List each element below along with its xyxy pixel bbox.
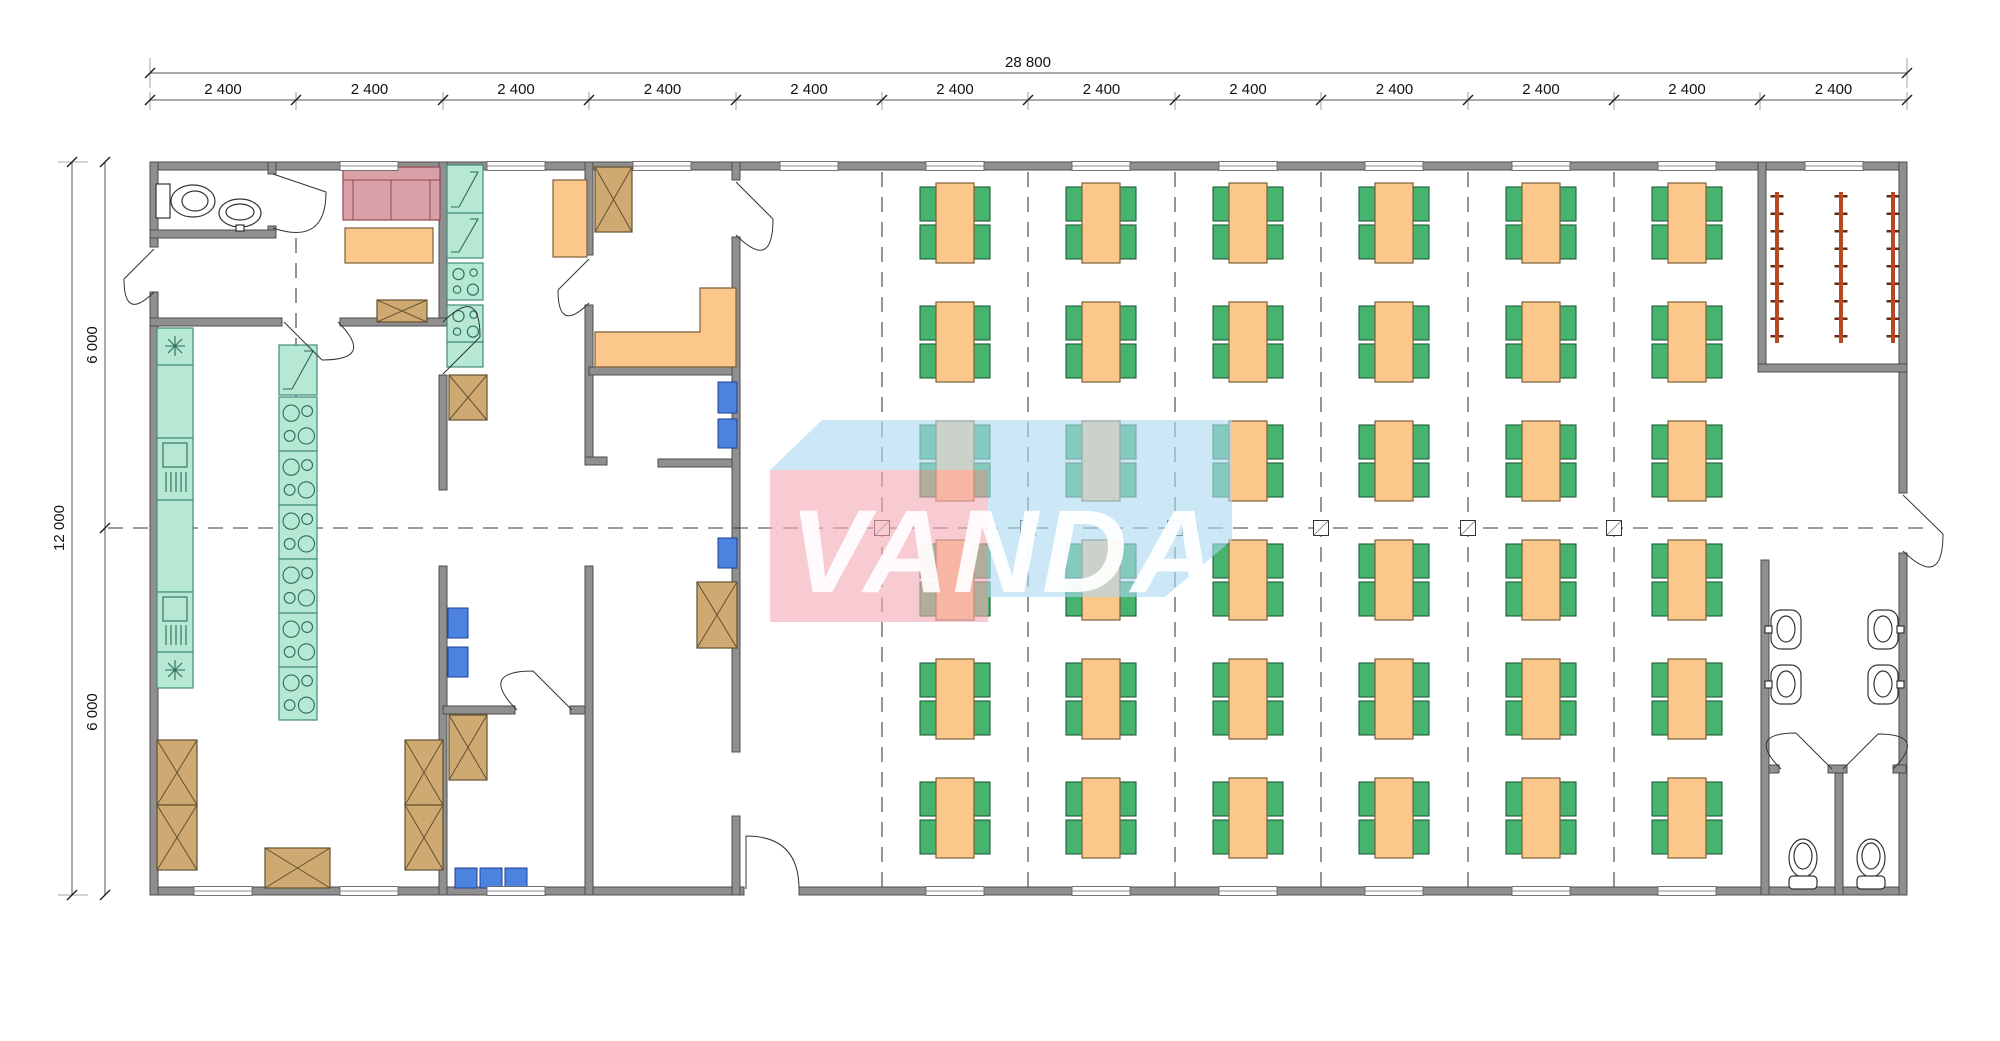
floor-plan-canvas: 28 800 2 4002 4002 4002 4002 4002 4002 4… — [0, 0, 2000, 1041]
chair — [1359, 701, 1375, 735]
chair — [1652, 225, 1668, 259]
chair — [1066, 225, 1082, 259]
floor-plan-image: 28 800 2 4002 4002 4002 4002 4002 4002 4… — [0, 0, 2000, 1041]
chair — [1560, 782, 1576, 816]
chair — [1267, 544, 1283, 578]
crossed-cabinet — [595, 167, 632, 232]
wardrobe-racks — [1777, 192, 1893, 343]
table — [936, 183, 974, 263]
table — [1668, 421, 1706, 501]
chair — [1213, 344, 1229, 378]
table — [936, 302, 974, 382]
table — [1375, 421, 1413, 501]
chair — [1120, 782, 1136, 816]
chair — [1506, 582, 1522, 616]
window — [1512, 162, 1570, 171]
table — [1082, 778, 1120, 858]
serving-counter-l — [595, 288, 736, 367]
chair — [1066, 701, 1082, 735]
crossed-cabinet — [405, 805, 443, 870]
chair — [1413, 463, 1429, 497]
chair — [1359, 544, 1375, 578]
window — [1072, 162, 1130, 171]
chair — [1413, 344, 1429, 378]
window — [926, 887, 984, 896]
dining-table-group — [1213, 659, 1283, 739]
chair — [1506, 782, 1522, 816]
crossed-cabinet — [697, 582, 737, 648]
chair — [1652, 344, 1668, 378]
chair — [1066, 187, 1082, 221]
blue-seat — [718, 538, 737, 568]
dim-top-segment-7: 2 400 — [1083, 81, 1121, 98]
stove-top — [447, 305, 483, 342]
chair — [1706, 663, 1722, 697]
chair — [1359, 782, 1375, 816]
table — [1522, 421, 1560, 501]
stove-top — [447, 263, 483, 300]
chair — [1560, 225, 1576, 259]
chair — [1652, 463, 1668, 497]
chair — [920, 782, 936, 816]
table — [1668, 540, 1706, 620]
chair — [1359, 187, 1375, 221]
dining-table-group — [1652, 540, 1722, 620]
dim-top-segment-6: 2 400 — [936, 81, 974, 98]
chair — [920, 663, 936, 697]
dimension-left-segments: 6 000 6 000 — [84, 157, 110, 900]
window — [340, 887, 398, 896]
dim-top-segment-3: 2 400 — [497, 81, 535, 98]
chair — [974, 225, 990, 259]
window — [487, 162, 545, 171]
chair — [1652, 544, 1668, 578]
chair — [974, 701, 990, 735]
chair — [1560, 187, 1576, 221]
prep-room-desk — [553, 180, 587, 257]
dining-table-group — [1506, 659, 1576, 739]
window — [1219, 162, 1277, 171]
dining-table-group — [1066, 659, 1136, 739]
dining-table-group — [1359, 183, 1429, 263]
window — [1219, 887, 1277, 896]
chair — [1359, 582, 1375, 616]
dining-table-group — [920, 778, 990, 858]
table — [1229, 302, 1267, 382]
chair — [1120, 701, 1136, 735]
dining-table-group — [1066, 778, 1136, 858]
crossed-cabinet — [449, 375, 487, 420]
kitchen-island — [279, 345, 317, 395]
chair — [1560, 701, 1576, 735]
dim-top-segment-12: 2 400 — [1815, 81, 1853, 98]
blue-seat — [448, 608, 468, 638]
chair — [974, 344, 990, 378]
blue-seat — [505, 868, 527, 888]
chair — [1120, 820, 1136, 854]
chair — [1120, 225, 1136, 259]
dining-table-group — [1066, 183, 1136, 263]
dining-table-group — [1652, 302, 1722, 382]
staff-room-sofa — [343, 167, 440, 220]
dimension-top-overall: 28 800 — [145, 54, 1912, 88]
chair — [1506, 344, 1522, 378]
crossed-cabinet — [157, 740, 197, 805]
chair — [1706, 582, 1722, 616]
chair — [1359, 663, 1375, 697]
window — [1512, 887, 1570, 896]
chair — [1267, 701, 1283, 735]
chair — [1359, 820, 1375, 854]
chair — [974, 306, 990, 340]
dining-table-group — [1213, 183, 1283, 263]
table — [1522, 778, 1560, 858]
dining-table-group — [1213, 540, 1283, 620]
chair — [1066, 782, 1082, 816]
chair — [1066, 820, 1082, 854]
chair — [1706, 701, 1722, 735]
table — [1375, 540, 1413, 620]
dining-table-group — [1359, 659, 1429, 739]
table — [936, 659, 974, 739]
chair — [1652, 425, 1668, 459]
blue-seat — [718, 419, 737, 448]
chair — [1267, 582, 1283, 616]
chair — [1213, 663, 1229, 697]
table — [1668, 302, 1706, 382]
chair — [1506, 544, 1522, 578]
chair — [1213, 701, 1229, 735]
chair — [1652, 663, 1668, 697]
chair — [1706, 463, 1722, 497]
dimension-left-overall: 12 000 — [51, 157, 88, 900]
dining-table-group — [1213, 302, 1283, 382]
dining-table-group — [1359, 302, 1429, 382]
chair — [1267, 820, 1283, 854]
staff-room-table — [345, 228, 433, 263]
chair — [1413, 701, 1429, 735]
chair — [1560, 344, 1576, 378]
window — [926, 162, 984, 171]
table — [1229, 183, 1267, 263]
wc-basin — [219, 199, 261, 231]
chair — [1652, 701, 1668, 735]
chair — [920, 225, 936, 259]
window — [1365, 887, 1423, 896]
chair — [920, 820, 936, 854]
chair — [1706, 225, 1722, 259]
table — [1082, 302, 1120, 382]
crossed-cabinet — [265, 848, 330, 888]
chair — [920, 306, 936, 340]
window — [194, 887, 252, 896]
window — [1072, 887, 1130, 896]
wc-toilet — [156, 184, 215, 218]
chair — [1066, 344, 1082, 378]
chair — [1413, 425, 1429, 459]
chair — [1267, 306, 1283, 340]
dim-top-segment-4: 2 400 — [644, 81, 682, 98]
chair — [974, 663, 990, 697]
chair — [1413, 306, 1429, 340]
chair — [1706, 820, 1722, 854]
washroom-sinks — [1765, 610, 1904, 704]
chair — [1359, 463, 1375, 497]
chair — [1506, 187, 1522, 221]
blue-seat — [480, 868, 502, 888]
dining-table-group — [1506, 302, 1576, 382]
dim-top-segment-9: 2 400 — [1376, 81, 1414, 98]
chair — [1413, 663, 1429, 697]
table — [1229, 778, 1267, 858]
chair — [1359, 306, 1375, 340]
chair — [1213, 820, 1229, 854]
chair — [1267, 425, 1283, 459]
table — [1229, 659, 1267, 739]
crossed-cabinet — [377, 300, 427, 322]
chair — [1267, 344, 1283, 378]
dining-table-group — [1506, 421, 1576, 501]
chair — [1506, 306, 1522, 340]
dining-table-group — [920, 659, 990, 739]
dining-table-group — [920, 302, 990, 382]
window — [1805, 162, 1863, 171]
chair — [1267, 187, 1283, 221]
table — [1522, 302, 1560, 382]
kitchen-wall-counter — [157, 328, 193, 688]
table — [1375, 659, 1413, 739]
chair — [1359, 425, 1375, 459]
watermark-logo: VANDA — [770, 420, 1232, 622]
chair — [920, 187, 936, 221]
chair — [920, 344, 936, 378]
table — [1375, 302, 1413, 382]
dim-top-segment-8: 2 400 — [1229, 81, 1267, 98]
dining-table-group — [1506, 540, 1576, 620]
chair — [1560, 544, 1576, 578]
dim-top-segment-2: 2 400 — [351, 81, 389, 98]
stove-module — [279, 397, 317, 451]
chair — [1506, 663, 1522, 697]
table — [1375, 183, 1413, 263]
dining-table-group — [1652, 659, 1722, 739]
chair — [1413, 782, 1429, 816]
chair — [1560, 306, 1576, 340]
crossed-cabinet — [157, 805, 197, 870]
chair — [1213, 187, 1229, 221]
chair — [1413, 582, 1429, 616]
chair — [1506, 820, 1522, 854]
chair — [1506, 225, 1522, 259]
dim-top-segment-1: 2 400 — [204, 81, 242, 98]
chair — [1506, 463, 1522, 497]
chair — [1506, 701, 1522, 735]
chair — [1267, 782, 1283, 816]
blue-seat — [455, 868, 477, 888]
dim-top-segment-5: 2 400 — [790, 81, 828, 98]
chair — [1706, 306, 1722, 340]
chair — [1706, 344, 1722, 378]
window — [1365, 162, 1423, 171]
chair — [974, 820, 990, 854]
dim-left-segment-2: 6 000 — [84, 693, 101, 731]
dining-table-group — [1359, 421, 1429, 501]
chair — [1652, 782, 1668, 816]
stove-module — [279, 667, 317, 720]
dining-table-group — [1066, 302, 1136, 382]
dimension-top-segments: 2 4002 4002 4002 4002 4002 4002 4002 400… — [145, 81, 1912, 110]
stove-module — [447, 263, 483, 300]
dining-table-group — [920, 183, 990, 263]
crossed-cabinet — [405, 740, 443, 805]
dining-table-group — [1652, 778, 1722, 858]
table — [1668, 659, 1706, 739]
window — [633, 162, 691, 171]
chair — [1413, 225, 1429, 259]
chair — [1213, 306, 1229, 340]
table — [1668, 778, 1706, 858]
chair — [1267, 463, 1283, 497]
dining-table-group — [1506, 183, 1576, 263]
chair — [1652, 820, 1668, 854]
window — [1658, 162, 1716, 171]
chair — [1560, 463, 1576, 497]
chair — [1120, 663, 1136, 697]
chair — [1652, 582, 1668, 616]
table — [1082, 659, 1120, 739]
chair — [1120, 187, 1136, 221]
stove-module — [279, 451, 317, 505]
window — [340, 162, 398, 171]
dining-table-group — [1359, 540, 1429, 620]
table — [1522, 540, 1560, 620]
dim-left-segment-1: 6 000 — [84, 326, 101, 364]
stove-module — [279, 559, 317, 613]
chair — [974, 782, 990, 816]
window — [1658, 887, 1716, 896]
dining-table-group — [1359, 778, 1429, 858]
chair — [1066, 306, 1082, 340]
chair — [1066, 663, 1082, 697]
chair — [1706, 544, 1722, 578]
chair — [1120, 306, 1136, 340]
window — [780, 162, 838, 171]
crossed-cabinet — [449, 715, 487, 780]
chair — [1506, 425, 1522, 459]
chair — [1560, 663, 1576, 697]
stove-module — [279, 505, 317, 559]
dim-top-segment-11: 2 400 — [1668, 81, 1706, 98]
table — [1082, 183, 1120, 263]
chair — [1267, 663, 1283, 697]
table — [1522, 183, 1560, 263]
chair — [1560, 425, 1576, 459]
dim-overall-width: 28 800 — [1005, 54, 1051, 71]
chair — [1706, 187, 1722, 221]
table — [936, 778, 974, 858]
stove-module — [447, 305, 483, 342]
chair — [1413, 820, 1429, 854]
table — [1229, 421, 1267, 501]
chair — [1560, 820, 1576, 854]
chair — [1652, 187, 1668, 221]
table — [1375, 778, 1413, 858]
chair — [1213, 782, 1229, 816]
dining-table-group — [1652, 183, 1722, 263]
chair — [1359, 344, 1375, 378]
blue-seat — [448, 647, 468, 677]
dim-top-segment-10: 2 400 — [1522, 81, 1560, 98]
chair — [920, 701, 936, 735]
dining-table-group — [1652, 421, 1722, 501]
table — [1229, 540, 1267, 620]
stove-module — [279, 613, 317, 667]
chair — [1560, 582, 1576, 616]
table — [1522, 659, 1560, 739]
chair — [1706, 782, 1722, 816]
chair — [1706, 425, 1722, 459]
chair — [1413, 187, 1429, 221]
chair — [1213, 225, 1229, 259]
blue-seat — [718, 382, 737, 413]
dining-table-group — [1506, 778, 1576, 858]
chair — [974, 187, 990, 221]
chair — [1359, 225, 1375, 259]
dim-overall-height: 12 000 — [51, 505, 68, 551]
table — [1668, 183, 1706, 263]
chair — [1120, 344, 1136, 378]
chair — [1652, 306, 1668, 340]
dining-table-group — [1213, 778, 1283, 858]
window — [487, 887, 545, 896]
chair — [1413, 544, 1429, 578]
chair — [1267, 225, 1283, 259]
watermark-text: VANDA — [790, 486, 1221, 618]
